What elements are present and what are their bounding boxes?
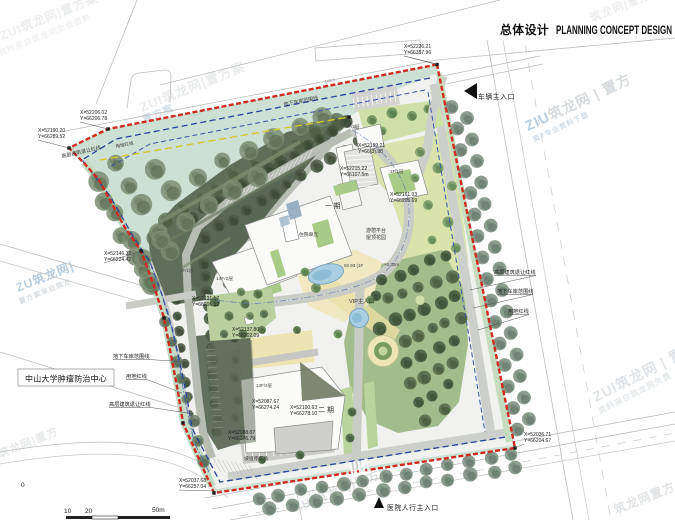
- svg-text:Y=66202.09: Y=66202.09: [232, 333, 259, 339]
- svg-text:Y=66206.78: Y=66206.78: [80, 116, 107, 122]
- svg-text:Y=66289.52: Y=66289.52: [38, 134, 65, 140]
- svg-text:10: 10: [64, 508, 72, 515]
- svg-text:总体设计: 总体设计: [500, 23, 549, 37]
- svg-text:坡道停车场: 坡道停车场: [244, 455, 268, 462]
- svg-text:Y=66278.10: Y=66278.10: [290, 411, 317, 417]
- svg-text:医院人行主入口: 医院人行主入口: [387, 503, 439, 512]
- svg-text:高层建筑退让红线: 高层建筑退让红线: [494, 268, 536, 276]
- svg-text:Y=66224.42: Y=66224.42: [104, 257, 131, 263]
- svg-text:50.93 (1F: 50.93 (1F: [344, 263, 364, 268]
- svg-text:Y=66206.12: Y=66206.12: [192, 302, 219, 308]
- svg-text:用地红线: 用地红线: [508, 307, 529, 315]
- svg-text:Y=66257.04: Y=66257.04: [179, 484, 206, 490]
- svg-text:14F/2层: 14F/2层: [216, 276, 233, 282]
- svg-text:二期: 二期: [318, 406, 336, 414]
- svg-text:Y=66204.67: Y=66204.67: [524, 438, 551, 444]
- svg-text:Y=66274.24: Y=66274.24: [252, 405, 279, 411]
- svg-text:0: 0: [21, 482, 25, 489]
- svg-text:Y=66276.79: Y=66276.79: [228, 436, 255, 442]
- svg-text:Y=66205.69: Y=66205.69: [390, 198, 417, 204]
- svg-text:Y=66357.96: Y=66357.96: [404, 50, 431, 56]
- svg-text:地下车库范围线: 地下车库范围线: [497, 287, 533, 295]
- svg-text:20: 20: [85, 508, 93, 515]
- svg-text:50m: 50m: [152, 507, 165, 514]
- svg-text:高层建筑退让红线: 高层建筑退让红线: [109, 400, 151, 408]
- svg-text:车辆主入口: 车辆主入口: [478, 92, 515, 101]
- svg-text:用地红线: 用地红线: [126, 372, 147, 380]
- svg-text:一期: 一期: [325, 202, 343, 210]
- svg-text:Y=66107.5m: Y=66107.5m: [340, 172, 369, 178]
- svg-text:Y=66(3).98: Y=66(3).98: [358, 149, 383, 155]
- svg-text:游憩平台: 游憩平台: [366, 227, 386, 234]
- svg-text:中山大学肿瘤防治中心: 中山大学肿瘤防治中心: [25, 374, 107, 384]
- svg-text:地下车库范围线: 地下车库范围线: [113, 352, 149, 360]
- svg-text:PLANNING CONCEPT DESIGN: PLANNING CONCEPT DESIGN: [556, 25, 672, 37]
- svg-text:住院单元: 住院单元: [299, 231, 318, 238]
- svg-text:VIP主入口: VIP主入口: [349, 297, 374, 305]
- svg-text:+0.30m: +0.30m: [384, 262, 399, 267]
- svg-text:屋顶花园: 屋顶花园: [366, 234, 386, 241]
